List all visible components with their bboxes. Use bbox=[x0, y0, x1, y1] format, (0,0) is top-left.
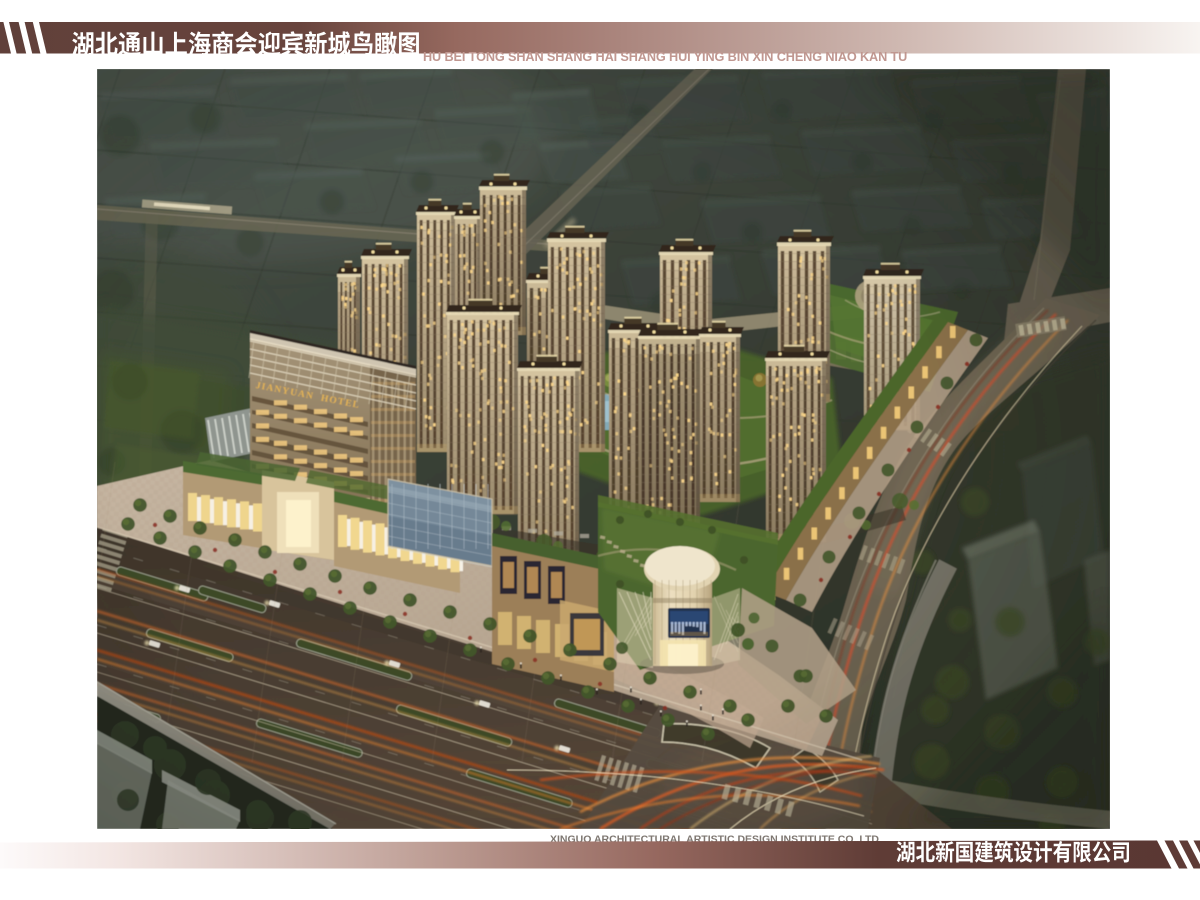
svg-text:HU BEI TONG SHAN SHANG HAI SHA: HU BEI TONG SHAN SHANG HAI SHANG HUI YIN… bbox=[423, 50, 907, 64]
